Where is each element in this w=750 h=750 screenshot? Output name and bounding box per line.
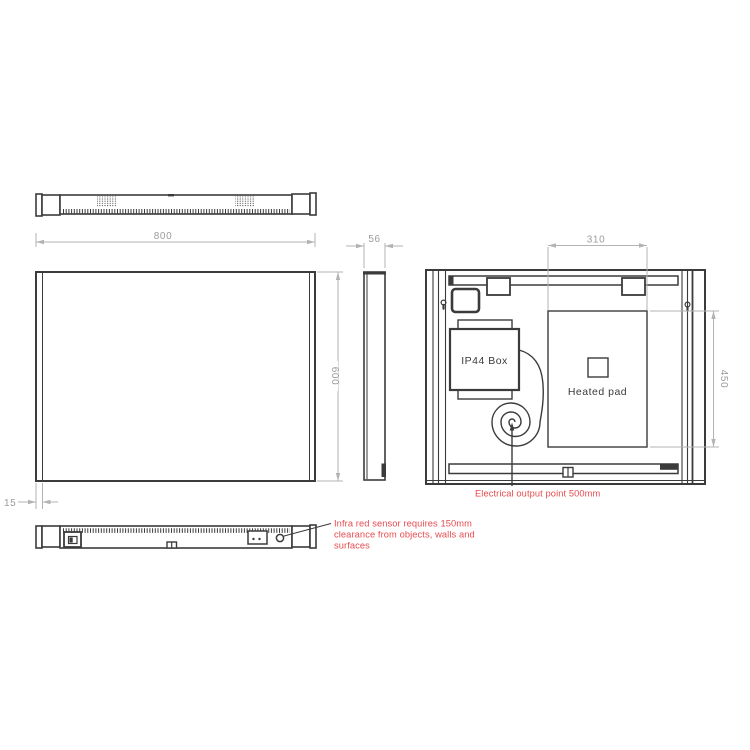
- mirror-technical-drawing: 800 600 15 56: [0, 0, 750, 750]
- ir-sensor-icon: [276, 534, 283, 541]
- dim-56-arrow-left: [356, 244, 364, 248]
- dim-56-arrow-right: [385, 244, 393, 248]
- mounting-bracket-right: [622, 278, 645, 295]
- side-view: [363, 272, 386, 480]
- dim-600-arrow-top: [336, 272, 340, 280]
- front-view-outline: [36, 272, 315, 481]
- ir-sensor-label-line1: Infra red sensor requires 150mm: [334, 519, 472, 529]
- back-view: IP44 Box Heated pad: [426, 270, 705, 484]
- heated-pad: [548, 311, 647, 447]
- bottom-view-left-endcap: [36, 526, 42, 548]
- bottom-view-left-cap-body: [42, 526, 60, 547]
- ip44-box-label: IP44 Box: [461, 355, 508, 367]
- drawing-svg: 800 600 15 56: [0, 0, 750, 750]
- dim-800-value: 800: [154, 231, 173, 242]
- speaker-grill-dots-left: [97, 197, 117, 208]
- bottom-view-right-cap-body: [292, 526, 310, 547]
- dim-600-arrow-bottom: [336, 473, 340, 481]
- dim-15-value: 15: [4, 498, 16, 509]
- top-view-left-cap-body: [42, 195, 60, 215]
- heated-pad-cutout: [588, 358, 608, 377]
- sensor-plate: [248, 531, 267, 544]
- dim-15-arrow-right: [43, 500, 51, 504]
- top-view-left-endcap: [36, 194, 42, 216]
- power-switch-icon: [64, 532, 81, 547]
- side-view-sensor-mark: [382, 464, 387, 478]
- dim-450-value: 450: [718, 370, 729, 389]
- dim-800-arrow-left: [36, 240, 44, 244]
- dim-56-value: 56: [368, 234, 380, 245]
- bottom-view: [36, 525, 316, 548]
- bottom-clamp: [167, 542, 177, 548]
- dim-450-arrow-top: [711, 311, 715, 319]
- bottom-rail-black-mark: [660, 464, 678, 470]
- ir-sensor-label-line2: clearance from objects, walls and: [334, 530, 475, 540]
- dim-310-arrow-right: [639, 243, 647, 247]
- dim-15: 15: [4, 483, 58, 509]
- dim-450-arrow-bottom: [711, 439, 715, 447]
- dim-56: 56: [346, 234, 403, 268]
- dim-310-arrow-left: [548, 243, 556, 247]
- top-view-right-endcap: [310, 193, 316, 215]
- driver-box: [452, 289, 479, 312]
- dim-600-value: 600: [329, 367, 340, 386]
- heated-pad-label: Heated pad: [568, 386, 627, 398]
- ir-sensor-label-line3: surfaces: [334, 541, 370, 551]
- dim-15-arrow-left: [28, 500, 36, 504]
- top-view-right-cap-body: [292, 194, 310, 214]
- hanging-rail-end-cap: [449, 276, 454, 285]
- top-view-body: [60, 195, 292, 214]
- front-view: [36, 272, 315, 481]
- speaker-grill-dots-right: [235, 197, 255, 208]
- mounting-bracket-left: [487, 278, 510, 295]
- top-view: [36, 193, 316, 216]
- dim-800-arrow-right: [307, 240, 315, 244]
- dim-310-value: 310: [587, 235, 606, 246]
- top-edge-notch: [168, 194, 174, 196]
- dim-800: 800: [36, 228, 315, 247]
- electrical-output-label: Electrical output point 500mm: [475, 489, 601, 499]
- dim-600: 600: [317, 272, 343, 481]
